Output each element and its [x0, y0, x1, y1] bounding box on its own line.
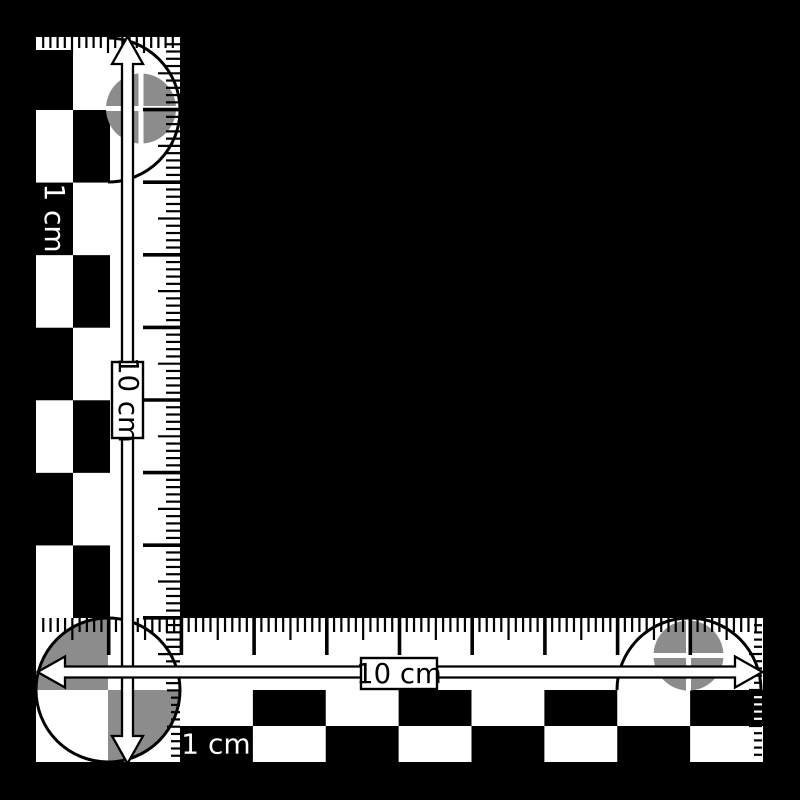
checker-square: [253, 690, 326, 726]
checker-square: [472, 726, 545, 762]
horizontal-arrow-label: 10 cm: [356, 658, 442, 690]
horizontal-unit-label: 1 cm: [181, 728, 250, 761]
checker-square: [73, 400, 110, 473]
checker-square: [399, 690, 472, 726]
vertical-arrow-label-box: 10 cm: [112, 357, 144, 443]
checker-square: [36, 50, 73, 110]
checker-square: [73, 110, 110, 183]
checker-square: [690, 690, 763, 726]
vertical-arrow-label: 10 cm: [112, 357, 144, 443]
photographic-scale-bar-image: 1 cm 1 cm 10 cm 10 cm: [0, 0, 800, 800]
checker-square: [36, 328, 73, 401]
vertical-unit-label: 1 cm: [38, 183, 71, 252]
scale-bar-graphic: 1 cm 1 cm 10 cm 10 cm: [0, 0, 800, 800]
crosshair-vertical-line: [139, 74, 144, 144]
checker-square: [617, 726, 690, 762]
checker-square: [36, 473, 73, 546]
checker-square: [73, 545, 110, 618]
checker-square: [326, 726, 399, 762]
checker-square: [544, 690, 617, 726]
horizontal-arrow-label-box: 10 cm: [356, 658, 442, 690]
checker-square: [73, 255, 110, 328]
